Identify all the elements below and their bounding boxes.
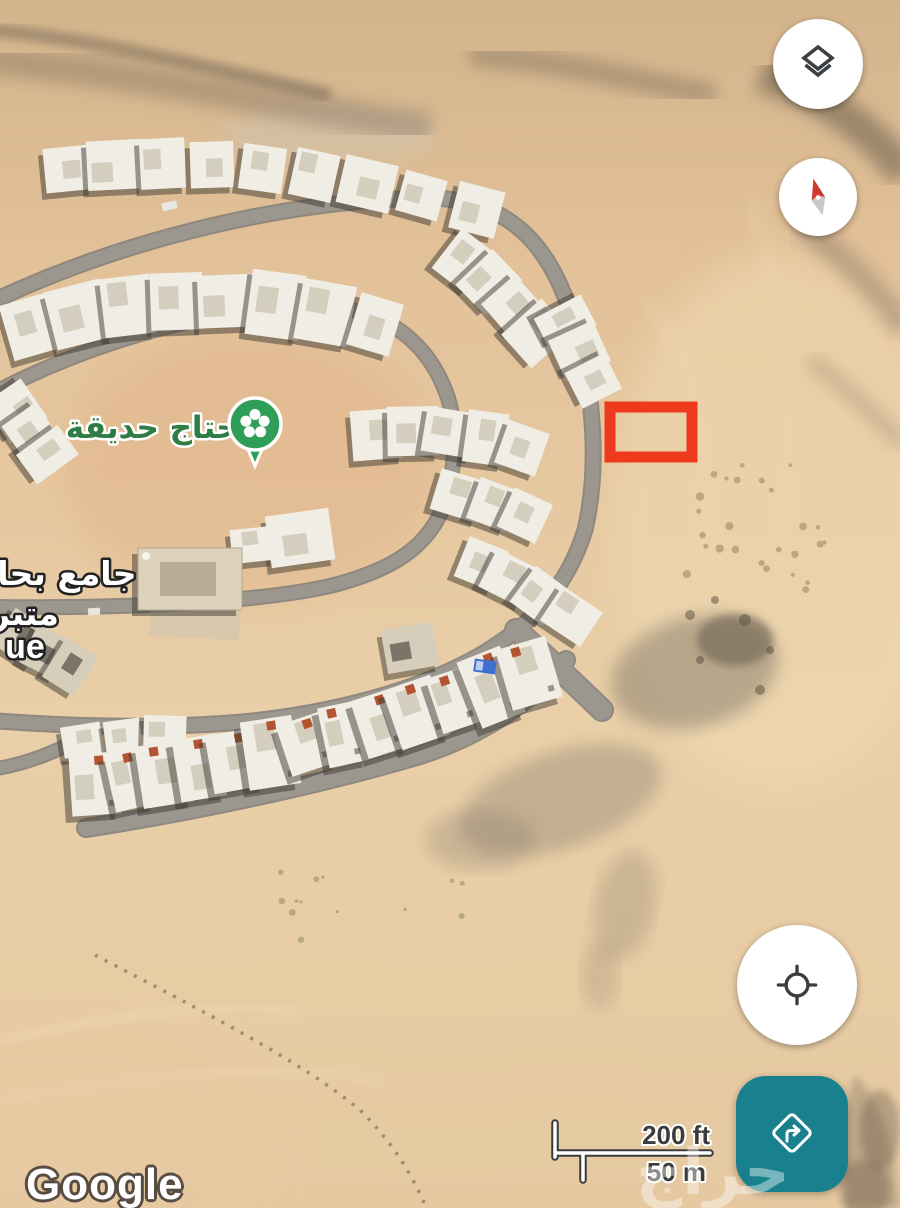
my-location-button[interactable] [737,925,857,1045]
directions-button[interactable] [736,1076,848,1192]
turn-right-icon [763,1105,821,1163]
scale-metric: 50 m [647,1157,706,1187]
mosque-label-line1[interactable]: جامع بحاج [0,554,137,594]
park-label[interactable]: نحتاج حديقة [66,410,250,446]
map-canvas[interactable]: جامع بحاج متبر ue نحتاج حديقة [0,0,900,1208]
mosque-label-line3[interactable]: ue [5,628,45,666]
scale-imperial: 200 ft [642,1120,710,1150]
google-watermark: Google [26,1160,184,1208]
compass-button[interactable] [779,158,857,236]
compass-needle-icon [796,175,840,219]
layers-button[interactable] [773,19,863,109]
mosque-building [132,548,242,616]
scale-bar: 200 ft 50 m [538,1108,728,1194]
layers-icon [795,41,841,87]
crosshair-icon [770,958,824,1012]
